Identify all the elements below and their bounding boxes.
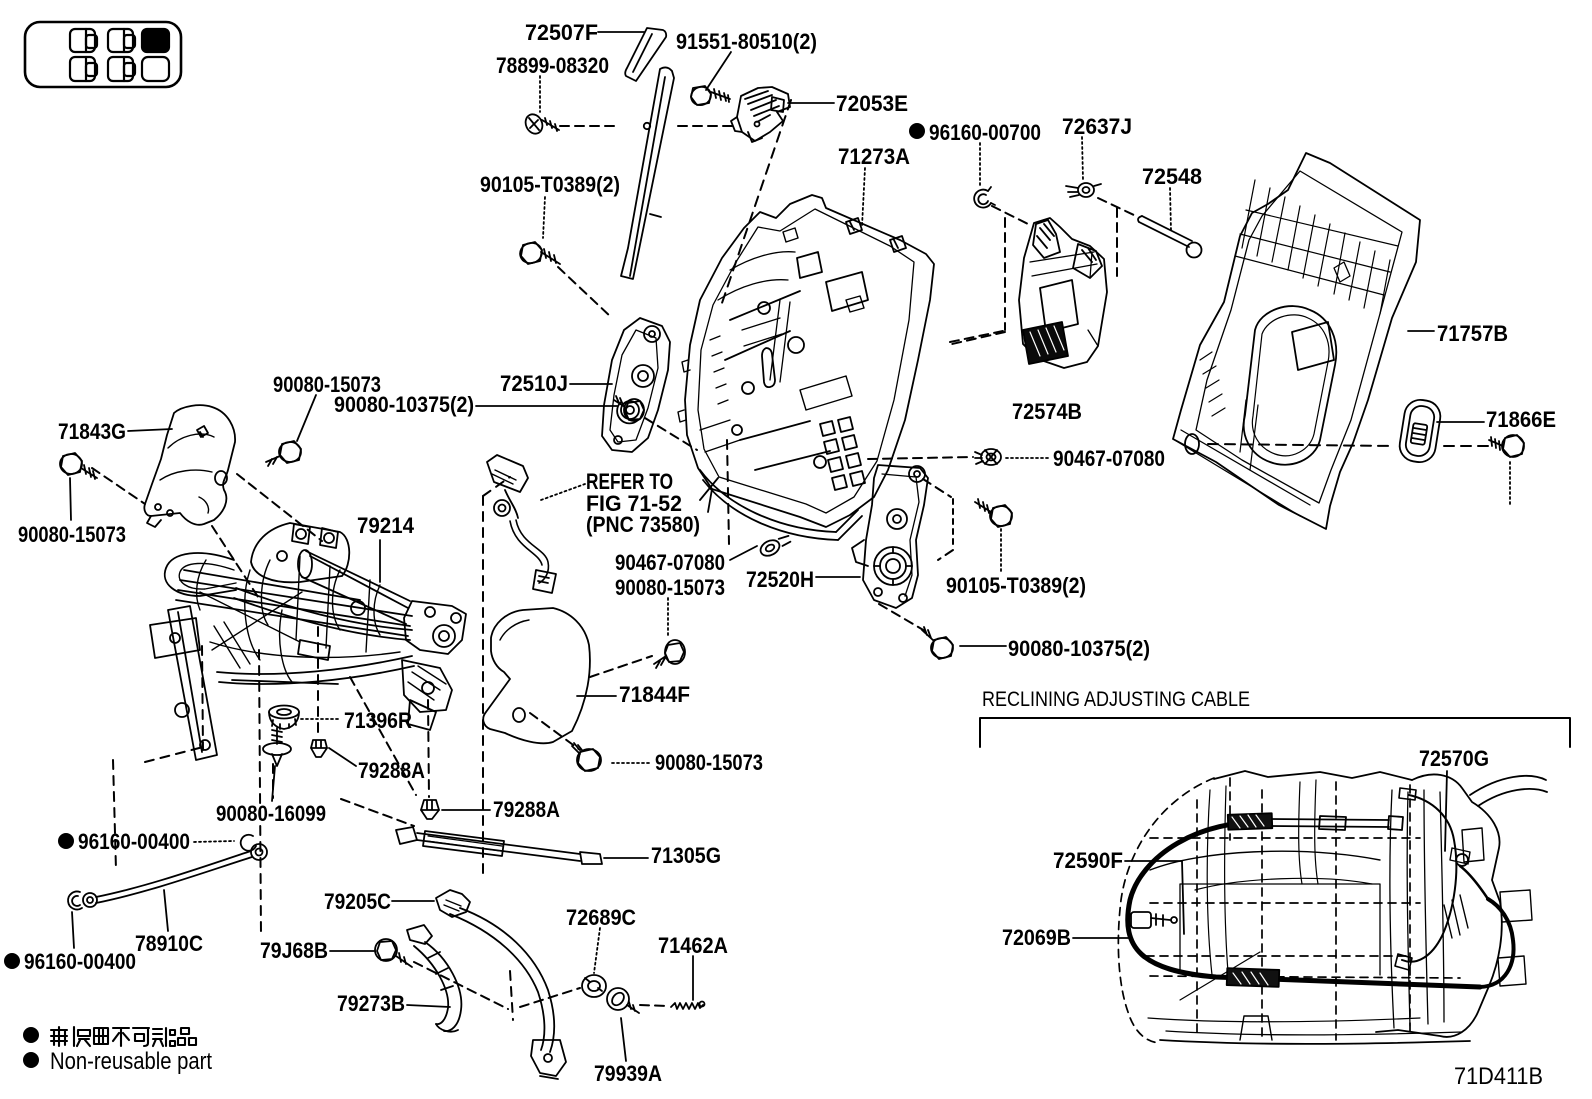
svg-text:(PNC 73580): (PNC 73580) <box>586 512 700 537</box>
svg-text:79214: 79214 <box>357 513 415 538</box>
svg-text:72590F: 72590F <box>1053 848 1123 873</box>
svg-text:90080-15073: 90080-15073 <box>18 522 126 547</box>
svg-text:90080-15073: 90080-15073 <box>655 750 763 775</box>
svg-text:79J68B: 79J68B <box>260 938 328 963</box>
svg-text:79273B: 79273B <box>337 991 405 1016</box>
svg-text:79205C: 79205C <box>324 889 391 914</box>
svg-text:Non-reusable part: Non-reusable part <box>50 1048 212 1075</box>
svg-text:90080-10375(2): 90080-10375(2) <box>1008 636 1150 661</box>
svg-text:71396R: 71396R <box>344 708 412 733</box>
svg-text:71305G: 71305G <box>651 843 721 868</box>
svg-text:90105-T0389(2): 90105-T0389(2) <box>480 172 620 197</box>
svg-text:90105-T0389(2): 90105-T0389(2) <box>946 573 1086 598</box>
svg-text:72689C: 72689C <box>566 905 636 930</box>
svg-text:79288A: 79288A <box>493 797 560 822</box>
svg-text:96160-00700: 96160-00700 <box>929 120 1041 145</box>
svg-text:72053E: 72053E <box>836 91 908 116</box>
svg-text:96160-00400: 96160-00400 <box>78 829 190 854</box>
svg-text:90467-07080: 90467-07080 <box>615 550 725 575</box>
svg-text:72069B: 72069B <box>1002 925 1071 950</box>
svg-text:72510J: 72510J <box>500 371 568 396</box>
svg-text:71843G: 71843G <box>58 419 126 444</box>
svg-text:72548: 72548 <box>1142 164 1202 189</box>
svg-text:71844F: 71844F <box>619 682 690 707</box>
svg-text:90080-15073: 90080-15073 <box>615 575 725 600</box>
svg-text:72570G: 72570G <box>1419 746 1489 771</box>
svg-text:RECLINING ADJUSTING CABLE: RECLINING ADJUSTING CABLE <box>982 688 1250 711</box>
svg-text:71462A: 71462A <box>658 933 728 958</box>
svg-text:71D411B: 71D411B <box>1454 1063 1543 1090</box>
svg-text:91551-80510(2): 91551-80510(2) <box>676 29 817 54</box>
svg-text:90080-16099: 90080-16099 <box>216 801 326 826</box>
svg-text:72574B: 72574B <box>1012 399 1082 424</box>
svg-text:79939A: 79939A <box>594 1061 662 1086</box>
svg-text:78910C: 78910C <box>135 931 203 956</box>
svg-text:72520H: 72520H <box>746 567 814 592</box>
svg-text:90467-07080: 90467-07080 <box>1053 446 1165 471</box>
svg-text:96160-00400: 96160-00400 <box>24 949 136 974</box>
svg-text:90080-10375(2): 90080-10375(2) <box>334 392 474 417</box>
svg-text:71866E: 71866E <box>1486 407 1556 432</box>
svg-text:71757B: 71757B <box>1437 321 1508 346</box>
svg-text:72507F: 72507F <box>525 20 598 45</box>
svg-text:79288A: 79288A <box>358 758 425 783</box>
svg-text:78899-08320: 78899-08320 <box>496 53 609 78</box>
svg-text:72637J: 72637J <box>1062 114 1132 139</box>
svg-text:71273A: 71273A <box>838 144 910 169</box>
